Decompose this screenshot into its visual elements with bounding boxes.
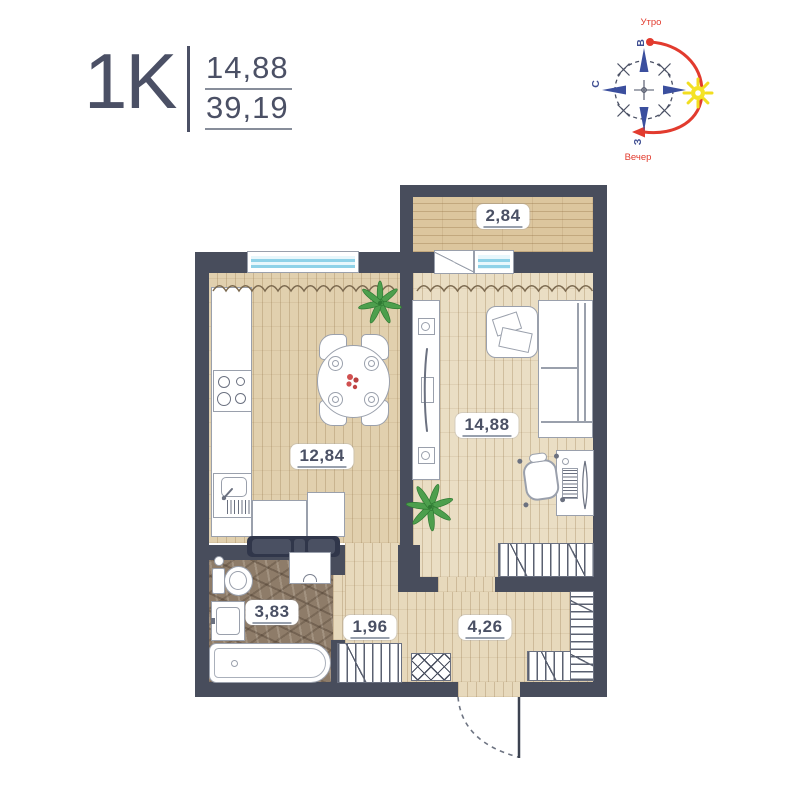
wall-segment bbox=[400, 185, 607, 197]
wardrobe-corridor-bottom bbox=[527, 651, 571, 681]
compass-dir-west: З bbox=[632, 138, 644, 145]
toilet-bowl bbox=[224, 566, 253, 596]
compass-center-cross bbox=[634, 80, 654, 100]
label-corridor: 4,26 bbox=[458, 615, 511, 640]
stove-burner bbox=[235, 393, 246, 404]
wardrobe-room bbox=[498, 543, 594, 577]
tv-console bbox=[412, 300, 440, 480]
wardrobe-hall bbox=[337, 643, 402, 683]
plate bbox=[328, 356, 343, 371]
kitchen-counter-corner bbox=[307, 492, 345, 537]
wall-segment bbox=[400, 185, 413, 252]
compass-svg: Утро Вечер В С З bbox=[588, 8, 728, 166]
label-corridor-value: 4,26 bbox=[465, 617, 504, 639]
label-bathroom: 3,83 bbox=[245, 600, 298, 625]
office-chair bbox=[516, 447, 566, 510]
bed bbox=[538, 300, 593, 438]
tv-mount bbox=[421, 377, 434, 403]
dining-table bbox=[317, 345, 390, 418]
washing-machine bbox=[289, 552, 331, 584]
sink-drainboard bbox=[227, 500, 250, 514]
label-bathroom-value: 3,83 bbox=[252, 602, 291, 624]
area-main-label: 14,88 bbox=[205, 50, 292, 90]
entrance-door-swing bbox=[458, 697, 518, 757]
window-glass-line bbox=[478, 265, 510, 268]
wall-segment bbox=[495, 577, 593, 592]
compass-morning-label: Утро bbox=[641, 17, 662, 28]
bench-cushion bbox=[252, 539, 291, 554]
stove-burner bbox=[236, 377, 245, 386]
compass-rose: Утро Вечер В С З bbox=[588, 8, 728, 166]
balcony-door bbox=[434, 250, 474, 274]
label-living: 14,88 bbox=[455, 413, 518, 438]
room-doorway-floor bbox=[438, 577, 495, 592]
window-glass bbox=[478, 255, 510, 269]
vanity-sink-basin bbox=[216, 607, 240, 635]
console-item-knob bbox=[421, 322, 430, 331]
kitchen-sink-unit bbox=[213, 473, 252, 518]
evening-arrowhead bbox=[632, 127, 645, 138]
window-glass-line bbox=[251, 259, 355, 262]
console-item-knob bbox=[421, 451, 430, 460]
wall-segment bbox=[593, 185, 607, 697]
label-hall: 1,96 bbox=[343, 615, 396, 640]
plate bbox=[364, 392, 379, 407]
picture-frame bbox=[498, 327, 532, 353]
washing-machine-handle bbox=[303, 574, 317, 582]
bed-side-rail bbox=[584, 303, 586, 421]
area-total-label: 39,19 bbox=[205, 90, 292, 130]
window-glass bbox=[251, 256, 355, 268]
bed-divider bbox=[541, 367, 577, 369]
window-glass-line bbox=[251, 265, 355, 268]
compass-dir-north: С bbox=[590, 80, 602, 88]
label-kitchen: 12,84 bbox=[290, 444, 353, 469]
chair-leg bbox=[517, 458, 523, 464]
stove bbox=[213, 370, 252, 412]
label-hall-value: 1,96 bbox=[350, 617, 389, 639]
vanity-knob bbox=[211, 618, 215, 624]
area-total-value: 39,19 bbox=[205, 90, 292, 130]
stove-burner bbox=[217, 392, 231, 406]
chair-leg bbox=[554, 453, 560, 459]
plate bbox=[364, 356, 379, 371]
mouse bbox=[562, 458, 569, 465]
kitchen-counter-bottom bbox=[252, 500, 307, 537]
toilet-accessory bbox=[214, 556, 224, 566]
vanity-sink bbox=[211, 601, 245, 641]
balcony-window bbox=[474, 250, 514, 274]
compass-dir-east: В bbox=[635, 39, 647, 47]
chair-leg bbox=[560, 497, 566, 503]
console-item bbox=[418, 447, 435, 464]
bed-footboard bbox=[541, 421, 592, 423]
header-divider bbox=[187, 46, 190, 132]
plate bbox=[328, 392, 343, 407]
console-item bbox=[418, 318, 435, 335]
compass-arrow-north bbox=[602, 86, 626, 95]
floorplan-page: 1K 14,88 39,19 Утро Вечер bbox=[0, 0, 800, 800]
label-kitchen-value: 12,84 bbox=[297, 446, 346, 468]
wall-segment bbox=[398, 545, 420, 592]
label-balcony-value: 2,84 bbox=[483, 206, 522, 228]
compass-arrow-east bbox=[640, 48, 649, 72]
wall-segment bbox=[420, 577, 438, 592]
label-living-value: 14,88 bbox=[462, 415, 511, 437]
compass-evening-label: Вечер bbox=[625, 152, 652, 163]
bed-side-rail bbox=[577, 303, 579, 421]
doormat bbox=[411, 653, 451, 681]
kitchen-window bbox=[247, 251, 359, 273]
entrance-opening-floor bbox=[458, 682, 520, 697]
bathtub bbox=[209, 643, 331, 683]
area-main-value: 14,88 bbox=[205, 50, 292, 90]
sun-icon bbox=[684, 79, 712, 107]
window-glass-line bbox=[478, 259, 510, 262]
label-balcony: 2,84 bbox=[476, 204, 529, 229]
wardrobe-corridor-right bbox=[570, 591, 594, 681]
toilet-bowl-inner bbox=[229, 571, 247, 590]
wall-segment bbox=[520, 682, 607, 697]
stove-burner bbox=[218, 376, 230, 388]
sink-basin bbox=[221, 477, 247, 497]
bathtub-drain bbox=[231, 660, 238, 667]
coffee-table bbox=[486, 306, 538, 358]
plan-type-label: 1K bbox=[84, 36, 175, 127]
wall-segment bbox=[195, 252, 209, 697]
chair-leg bbox=[523, 502, 529, 508]
chair-seat bbox=[522, 458, 561, 502]
wall-segment bbox=[195, 682, 458, 697]
